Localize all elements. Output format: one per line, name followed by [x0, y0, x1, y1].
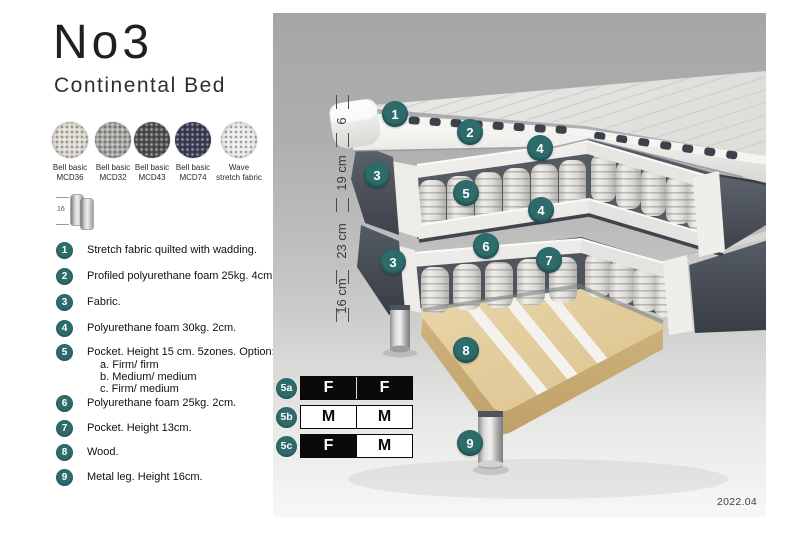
callout-6: 6 [473, 233, 499, 259]
firmness-id: 5c [276, 436, 297, 457]
firmness-id: 5a [276, 378, 297, 399]
callout-5: 5 [453, 180, 479, 206]
firmness-cell: F [301, 435, 357, 457]
bed-shadow [348, 459, 728, 499]
callout-3: 3 [364, 162, 390, 188]
fabric-swatch [52, 122, 88, 158]
legend-item: 3Fabric. [56, 294, 286, 311]
callout-1: 1 [382, 101, 408, 127]
legend-number: 3 [56, 294, 73, 311]
legend-item: 7Pocket. Height 13cm. [56, 420, 286, 437]
legend-item: 9Metal leg. Height 16cm. [56, 469, 286, 486]
legend-number: 6 [56, 395, 73, 412]
firmness-cells: FM [300, 434, 413, 458]
pocket-options: a. Firm/ firm b. Medium/ medium c. Firm/… [100, 359, 275, 395]
fabric-swatch [134, 122, 170, 158]
firmness-row-5c: 5cFM [276, 434, 413, 458]
legend-number: 8 [56, 444, 73, 461]
metal-leg-icon: 16 [56, 193, 116, 235]
callout-4: 4 [527, 135, 553, 161]
legend-number: 2 [56, 268, 73, 285]
firmness-row-5b: 5bMM [276, 405, 413, 429]
lower-foam-corner-post [663, 255, 693, 335]
fabric-swatch [175, 122, 211, 158]
metal-leg-back [390, 305, 410, 353]
firmness-cells: MM [300, 405, 413, 429]
firmness-cell: M [301, 406, 357, 428]
page-subtitle: Continental Bed [54, 74, 226, 98]
upper-fabric-side [351, 143, 399, 235]
legend-item: 5 Pocket. Height 15 cm. 5zones. Option: … [56, 344, 286, 395]
legend-number: 4 [56, 320, 73, 337]
callout-2: 2 [457, 119, 483, 145]
swatch-label: Wavestretch fabric [207, 163, 271, 183]
callout-9: 9 [457, 430, 483, 456]
firmness-cell: F [357, 377, 412, 399]
firmness-cell: F [301, 377, 357, 399]
legend-number: 9 [56, 469, 73, 486]
fabric-swatch [221, 122, 257, 158]
ruler-label: 6 [334, 91, 350, 151]
callout-8: 8 [453, 337, 479, 363]
leg-height-label: 16 [57, 206, 65, 213]
fabric-swatch [95, 122, 131, 158]
callout-4: 4 [528, 197, 554, 223]
ruler-label: 16 cm [334, 266, 350, 326]
firmness-row-5a: 5aFF [276, 376, 413, 400]
page: { "header": { "title": "No3", "subtitle"… [0, 0, 800, 533]
firmness-cell: M [357, 435, 412, 457]
legend-item: 1Stretch fabric quilted with wadding. [56, 242, 286, 259]
legend-number: 1 [56, 242, 73, 259]
legend-item: 2Profiled polyurethane foam 25kg. 4cm. [56, 268, 286, 285]
firmness-cells: FF [300, 376, 413, 400]
legend-number: 7 [56, 420, 73, 437]
ruler-label: 19 cm [334, 143, 350, 203]
ruler-label: 23 cm [334, 211, 350, 271]
page-title: No3 [53, 18, 153, 68]
callout-3: 3 [380, 249, 406, 275]
bed-cutaway-panel: 12435467389 619 cm23 cm16 cm 5aFF5bMM5cF… [273, 13, 766, 517]
firmness-id: 5b [276, 407, 297, 428]
legend-item: 4Polyurethane foam 30kg. 2cm. [56, 320, 286, 337]
firmness-cell: M [357, 406, 412, 428]
version-stamp: 2022.04 [717, 496, 757, 508]
legend-item: 8Wood. [56, 444, 286, 461]
legend-item: 6Polyurethane foam 25kg. 2cm. [56, 395, 286, 412]
legend-number: 5 [56, 344, 73, 361]
callout-7: 7 [536, 247, 562, 273]
